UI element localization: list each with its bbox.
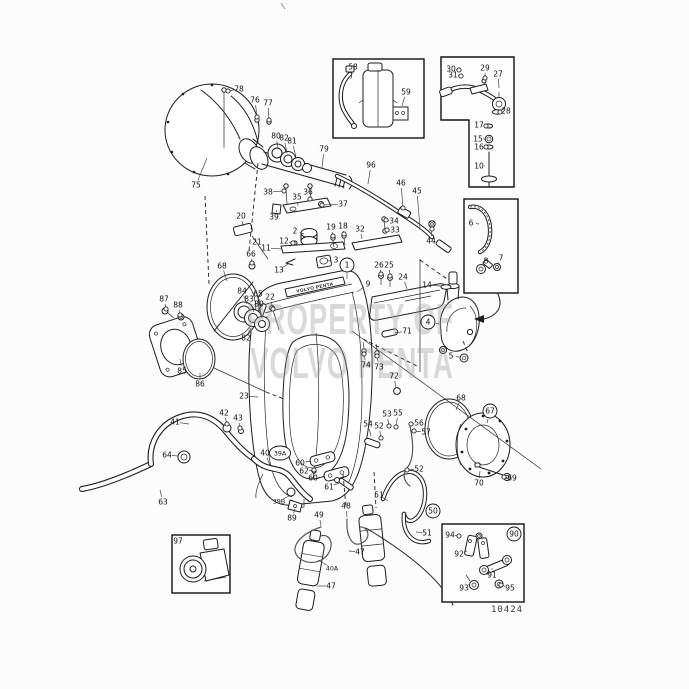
part-label-52: 52: [405, 465, 424, 474]
svg-text:64: 64: [162, 451, 172, 460]
svg-text:76: 76: [250, 96, 260, 105]
svg-text:37: 37: [338, 200, 348, 209]
part-label-88: 88: [173, 301, 183, 318]
part-label-41: 41: [170, 418, 189, 427]
part-label-44: 44: [426, 227, 436, 246]
svg-text:10: 10: [474, 162, 484, 171]
scan-mark: [281, 3, 285, 9]
part-label-79: 79: [319, 145, 329, 168]
suspension-ring-67: [425, 399, 511, 481]
svg-text:57: 57: [421, 428, 431, 437]
part-label-93: 93: [459, 584, 470, 593]
svg-text:27: 27: [493, 70, 503, 79]
part-label-51: 51: [416, 529, 432, 538]
svg-text:48: 48: [341, 502, 351, 511]
svg-text:5: 5: [449, 352, 454, 361]
svg-text:72: 72: [389, 372, 399, 381]
svg-text:41: 41: [170, 418, 180, 427]
part-label-12: 12: [279, 237, 295, 246]
svg-text:49: 49: [314, 511, 324, 520]
svg-text:59: 59: [401, 88, 411, 97]
svg-text:77: 77: [263, 99, 273, 108]
svg-text:12: 12: [279, 237, 289, 246]
part-label-25: 25: [384, 261, 394, 279]
svg-text:40A: 40A: [326, 566, 339, 573]
svg-text:19: 19: [326, 223, 336, 232]
part-label-32: 32: [355, 225, 365, 239]
svg-text:39: 39: [269, 213, 279, 222]
svg-text:68: 68: [456, 394, 466, 403]
svg-text:26: 26: [374, 261, 384, 270]
svg-text:35: 35: [292, 193, 302, 202]
part-label-7: 7: [498, 254, 504, 264]
svg-text:7: 7: [499, 254, 504, 263]
svg-text:69: 69: [507, 474, 517, 483]
part-label-26: 26: [374, 261, 384, 277]
svg-text:40: 40: [260, 449, 270, 458]
svg-text:53: 53: [382, 410, 392, 419]
svg-text:74: 74: [361, 361, 371, 370]
svg-text:14: 14: [422, 281, 432, 290]
svg-text:52: 52: [414, 465, 424, 474]
part-label-8: 8: [483, 257, 489, 266]
part-label-10: 10: [474, 162, 485, 171]
svg-text:51: 51: [374, 491, 384, 500]
part-label-36: 36: [303, 188, 313, 201]
parts-diagram-page: VOLVO PENTA: [0, 0, 689, 689]
svg-text:63: 63: [158, 498, 168, 507]
part-label-18: 18: [338, 222, 348, 236]
svg-text:86: 86: [195, 380, 205, 389]
part-label-38: 38: [263, 188, 286, 197]
svg-text:9: 9: [366, 280, 371, 289]
svg-text:18: 18: [338, 222, 348, 231]
svg-text:25: 25: [384, 261, 394, 270]
part-label-66: 66: [246, 250, 256, 266]
svg-text:87: 87: [159, 295, 169, 304]
part-label-20: 20: [236, 212, 246, 226]
inset-box-58-59: [333, 59, 424, 138]
svg-text:71: 71: [402, 327, 412, 336]
svg-text:3: 3: [334, 256, 339, 265]
svg-text:90: 90: [509, 530, 519, 539]
svg-text:54: 54: [363, 420, 373, 429]
svg-text:42: 42: [219, 409, 229, 418]
part-label-91: 91: [487, 568, 497, 580]
part-label-39A: 39A: [270, 446, 291, 460]
drawing-number: 10424: [491, 605, 523, 615]
svg-text:6: 6: [469, 219, 474, 228]
svg-text:39A: 39A: [274, 451, 287, 458]
svg-text:67: 67: [485, 407, 495, 416]
part-label-57: 57: [412, 428, 431, 437]
part-label-48: 48: [341, 502, 351, 517]
svg-text:52: 52: [374, 422, 384, 431]
svg-text:58: 58: [348, 63, 358, 72]
svg-text:81: 81: [287, 137, 297, 146]
exploded-parts-diagram: VOLVO PENTA: [0, 0, 689, 689]
svg-text:94: 94: [445, 531, 455, 540]
svg-text:20: 20: [236, 212, 246, 221]
svg-text:75: 75: [191, 181, 201, 190]
svg-text:79: 79: [319, 145, 329, 154]
part-label-87: 87: [159, 295, 169, 312]
watermark-line2: VOLVO PENTA: [250, 339, 454, 388]
svg-text:83: 83: [244, 295, 254, 304]
svg-text:22: 22: [265, 293, 275, 302]
part-label-47: 47: [349, 548, 365, 557]
part-label-13: 13: [274, 264, 288, 275]
svg-text:13: 13: [274, 266, 284, 275]
svg-text:55: 55: [393, 409, 403, 418]
svg-text:38: 38: [263, 188, 273, 197]
svg-text:97: 97: [173, 537, 183, 546]
part-label-50: 50: [426, 504, 440, 518]
svg-text:45: 45: [412, 187, 422, 196]
svg-text:78: 78: [234, 85, 244, 94]
svg-text:32: 32: [355, 225, 365, 234]
part-label-69: 69: [502, 474, 517, 483]
part-label-78: 78: [226, 85, 244, 94]
svg-text:1: 1: [345, 261, 350, 270]
part-label-43: 43: [233, 414, 243, 431]
svg-text:50: 50: [428, 507, 438, 516]
drive-shaft-79: [262, 144, 352, 189]
part-label-19: 19: [326, 223, 336, 238]
part-label-33: 33: [385, 226, 400, 235]
svg-text:11: 11: [261, 244, 271, 253]
part-label-64: 64: [162, 451, 178, 460]
svg-text:96: 96: [366, 161, 376, 170]
part-label-52: 52: [374, 422, 384, 441]
part-label-39: 39: [269, 210, 279, 222]
part-label-96: 96: [366, 161, 376, 184]
svg-text:70: 70: [474, 479, 484, 488]
svg-text:23: 23: [239, 392, 249, 401]
svg-text:47: 47: [326, 582, 336, 591]
part-label-77: 77: [263, 99, 273, 123]
part-label-34: 34: [384, 217, 399, 226]
part-label-49: 49: [314, 511, 324, 526]
part-label-90: 90: [507, 527, 521, 541]
svg-text:44: 44: [426, 237, 436, 246]
svg-text:68: 68: [217, 262, 227, 271]
svg-text:24: 24: [398, 273, 408, 282]
svg-text:36: 36: [303, 188, 313, 197]
svg-text:66: 66: [246, 250, 256, 259]
svg-text:91: 91: [487, 571, 497, 580]
svg-text:29: 29: [480, 64, 490, 73]
svg-text:39B: 39B: [273, 499, 285, 506]
part-label-55: 55: [393, 409, 403, 430]
svg-text:43: 43: [233, 414, 243, 423]
part-label-63: 63: [158, 490, 168, 507]
svg-text:51: 51: [422, 529, 432, 538]
part-label-97: 97: [173, 537, 183, 546]
part-label-47: 47: [317, 582, 336, 591]
svg-text:92: 92: [454, 550, 464, 559]
svg-text:80: 80: [254, 300, 264, 309]
svg-text:60: 60: [308, 474, 318, 483]
svg-text:17: 17: [474, 121, 484, 130]
svg-text:56: 56: [414, 419, 424, 428]
svg-text:65: 65: [253, 290, 263, 299]
svg-text:85: 85: [177, 367, 187, 376]
svg-text:88: 88: [173, 301, 183, 310]
svg-text:8: 8: [484, 257, 489, 266]
part-label-56: 56: [409, 419, 424, 428]
svg-text:2: 2: [293, 227, 298, 236]
svg-text:34: 34: [389, 217, 399, 226]
svg-text:95: 95: [505, 584, 515, 593]
svg-text:82: 82: [241, 334, 251, 343]
part-label-46: 46: [396, 179, 406, 210]
svg-text:73: 73: [374, 363, 384, 372]
watermark: PROPERTY OF VOLVO PENTA: [246, 295, 454, 388]
svg-text:61: 61: [324, 483, 334, 492]
svg-text:89: 89: [287, 514, 297, 523]
svg-text:93: 93: [459, 584, 469, 593]
svg-text:4: 4: [426, 318, 431, 327]
svg-text:46: 46: [396, 179, 406, 188]
svg-text:16: 16: [474, 143, 484, 152]
svg-text:28: 28: [501, 107, 511, 116]
part-label-24: 24: [398, 273, 408, 289]
svg-text:47: 47: [355, 548, 365, 557]
svg-text:31: 31: [448, 71, 458, 80]
svg-text:33: 33: [390, 226, 400, 235]
